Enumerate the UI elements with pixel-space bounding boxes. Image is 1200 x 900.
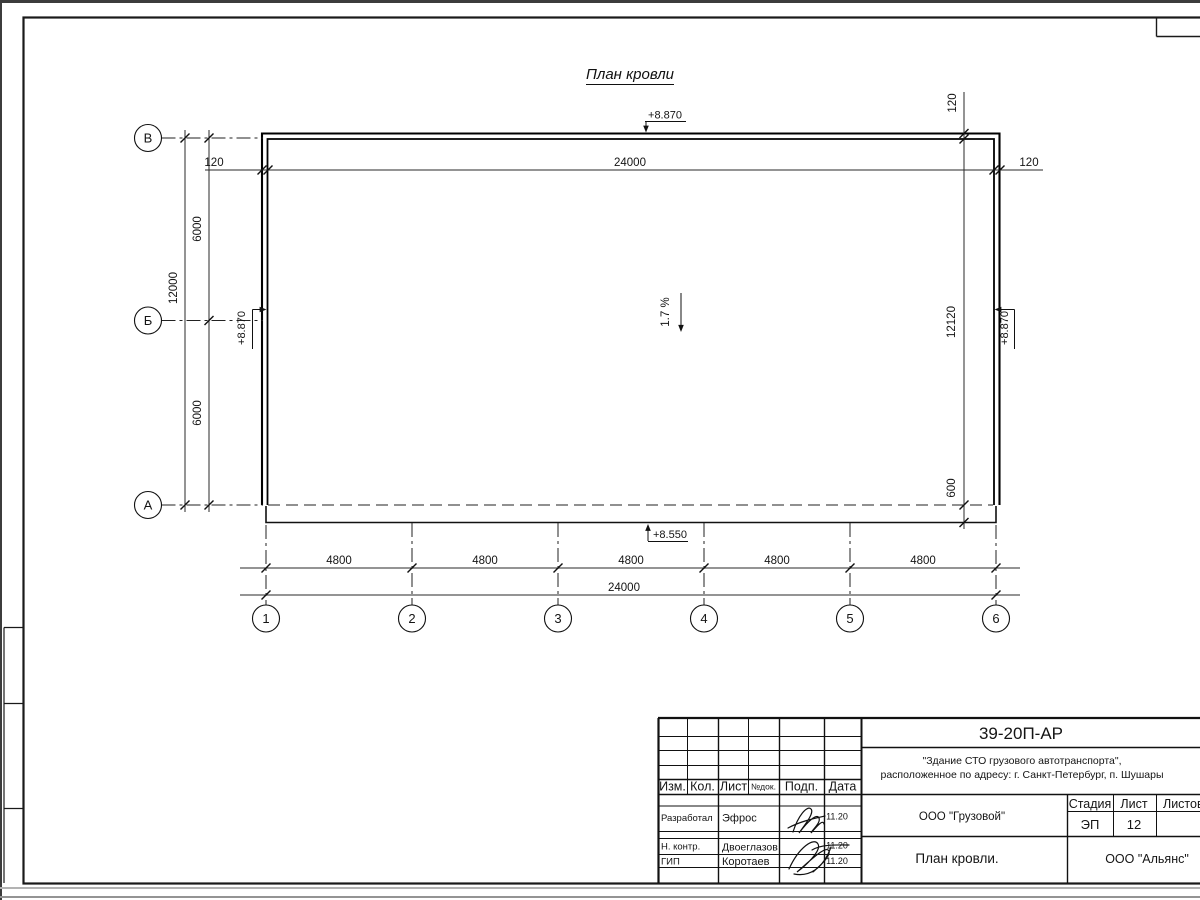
elevation-mark-top: +8.870: [648, 110, 682, 122]
col-header-list: Лист: [720, 780, 747, 794]
arrowheads: [260, 126, 1002, 531]
row-name: Эфрос: [722, 813, 757, 825]
signature-developer: [788, 808, 825, 833]
sheet-value: 12: [1127, 817, 1141, 832]
col-header-data: Дата: [829, 780, 857, 794]
sheets-label: Листов: [1163, 797, 1200, 811]
roof-plan-drawing: В Б А 1 2 3 4 5 6 24000 120 120 12000 60…: [0, 0, 1200, 900]
row-name: Коротаев: [722, 856, 770, 868]
row-role: Н. контр.: [661, 842, 700, 853]
row-role: ГИП: [661, 857, 680, 868]
dim-right-offset: 120: [947, 93, 959, 112]
stage-value: ЭП: [1081, 817, 1100, 832]
grid-col-label: 1: [262, 611, 269, 626]
col-header-kol: Кол.: [690, 780, 715, 794]
dim-bottom-seg: 4800: [764, 555, 790, 567]
col-header-izm: Изм.: [659, 780, 686, 794]
elevation-mark-eaves: +8.550: [653, 529, 687, 541]
dim-bottom-seg: 4800: [618, 555, 644, 567]
dim-bottom-total: 24000: [608, 582, 640, 594]
dim-top-total: 24000: [614, 157, 646, 169]
grid-row-label: Б: [144, 313, 153, 328]
dim-left-seg: 6000: [192, 216, 204, 242]
row-name: Двоеглазов: [722, 842, 778, 854]
dim-top-left-offset: 120: [204, 157, 223, 169]
stage-label: Стадия: [1069, 797, 1112, 811]
elevation-mark-right: +8.870: [999, 311, 1011, 345]
dim-left-total: 12000: [168, 272, 180, 304]
org-customer: ООО "Грузовой": [919, 811, 1005, 823]
dim-bottom-seg: 4800: [910, 555, 936, 567]
grid-col-label: 5: [846, 611, 853, 626]
dim-left-seg: 6000: [192, 400, 204, 426]
titleblock-texts: 39-20П-АР "Здание СТО грузового автотран…: [659, 724, 1200, 868]
row-date: 11.20: [826, 841, 848, 851]
row-date: 11.20: [826, 812, 848, 822]
object-name-line1: "Здание СТО грузового автотранспорта",: [922, 755, 1121, 767]
object-name-line2: расположенное по адресу: г. Санкт-Петерб…: [881, 769, 1164, 781]
grid-row-label: А: [144, 498, 153, 513]
row-role: Разработал: [661, 813, 713, 824]
dimension-ticks: [181, 129, 1005, 600]
dimension-labels: 24000 120 120 12000 6000 6000 120 12120 …: [168, 93, 1039, 594]
col-header-ndok: №док.: [751, 782, 776, 792]
dim-bottom-seg: 4800: [472, 555, 498, 567]
building-walls: [262, 134, 1000, 506]
grid-col-label: 2: [408, 611, 415, 626]
sheet-title: План кровли.: [915, 851, 998, 866]
eaves-edge: [266, 506, 996, 523]
grid-col-label: 3: [554, 611, 561, 626]
elevation-labels: +8.870 +8.550 +8.870 +8.870 1.7 %: [236, 110, 1011, 542]
grid-row-label: В: [144, 131, 153, 146]
slope-label: 1.7 %: [660, 297, 672, 326]
dim-bottom-seg: 4800: [326, 555, 352, 567]
doc-number: 39-20П-АР: [979, 724, 1063, 743]
dim-right-overhang: 600: [946, 478, 958, 497]
elevation-mark-left: +8.870: [236, 311, 248, 345]
dim-right-total: 12120: [946, 306, 958, 338]
col-header-podp: Подп.: [785, 780, 818, 794]
drawing-sheet: План кровли: [0, 0, 1200, 900]
axis-lines: [162, 138, 997, 606]
org-designer: ООО "Альянс": [1105, 852, 1189, 866]
dim-top-right-offset: 120: [1019, 157, 1038, 169]
sheet-frame: [4, 18, 1200, 884]
sheet-label: Лист: [1120, 797, 1147, 811]
row-date: 11.20: [826, 856, 848, 866]
grid-bubble-labels: В Б А 1 2 3 4 5 6: [144, 131, 1000, 627]
grid-col-label: 4: [700, 611, 707, 626]
grid-col-label: 6: [992, 611, 999, 626]
leaders-arrows: [253, 122, 1015, 542]
